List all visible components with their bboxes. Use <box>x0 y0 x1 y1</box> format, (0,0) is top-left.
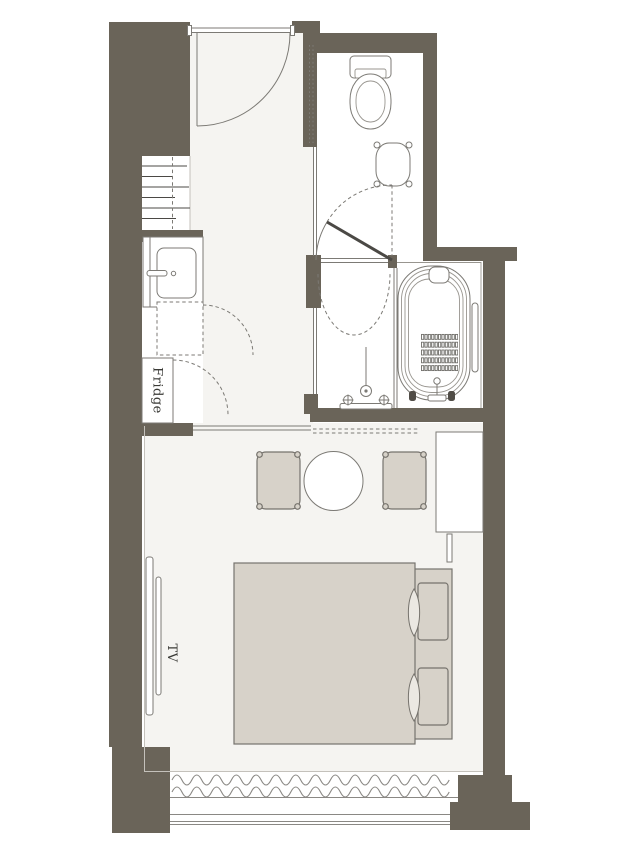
desk-side-panel <box>447 534 452 562</box>
tub-headrest <box>429 267 449 283</box>
wall-foot-right-step <box>458 775 512 802</box>
door-frame-cap-right <box>291 26 295 36</box>
tub-faucet-head <box>434 378 440 384</box>
tub-faucet-base <box>428 395 446 401</box>
wall-top-left <box>109 22 190 156</box>
wall-left <box>109 156 142 747</box>
floor-plan-canvas: Fridge <box>0 0 640 853</box>
toilet-door-arc <box>316 222 327 260</box>
tv-screen <box>146 557 153 715</box>
wall-bath-bottom <box>310 408 483 422</box>
wall-stub-bath <box>423 247 517 261</box>
chair-right <box>383 452 427 510</box>
toilet <box>350 56 391 129</box>
chair-left <box>257 452 301 510</box>
toilet-door-leaf <box>327 222 392 260</box>
corridor-partition <box>314 147 317 256</box>
tv-bracket <box>156 577 161 695</box>
under-counter-area <box>157 302 203 355</box>
tub-mat <box>421 333 458 372</box>
wall-toilet-right <box>423 53 437 250</box>
wall-foot-left <box>112 747 170 833</box>
shower-fixture <box>340 347 392 409</box>
faucet-knob <box>171 271 175 275</box>
bathtub <box>398 266 470 401</box>
pillow-top <box>418 583 448 640</box>
window-zone <box>170 775 458 825</box>
toilet-door <box>316 185 392 263</box>
wall-entry-right <box>292 21 320 33</box>
door-frame-cap-left <box>188 26 192 36</box>
tub-foot-right <box>448 391 455 401</box>
hand-basin <box>374 142 412 187</box>
kitchen-faucet <box>147 271 167 277</box>
pillow-bottom <box>418 668 448 725</box>
coat-hooks <box>142 156 190 230</box>
hand-basin-bowl <box>376 143 410 186</box>
shower-door-swing <box>318 274 390 335</box>
bathroom <box>314 262 482 409</box>
toilet-room <box>310 45 413 263</box>
toilet-door-dashed-arc <box>327 185 392 222</box>
fridge-label: Fridge <box>150 367 165 414</box>
bed-duvet <box>234 563 415 744</box>
desk <box>436 432 483 532</box>
tv-label: TV <box>164 643 179 662</box>
tub-foot-left <box>409 391 416 401</box>
wall-toilet-top <box>303 33 437 53</box>
bed <box>234 563 452 744</box>
corridor-floor <box>190 33 313 426</box>
floor-plan-page: Fridge <box>0 0 640 853</box>
curtain-wave-1 <box>172 775 449 785</box>
wall-stub-corridor <box>140 423 193 436</box>
wall-foot-right-base <box>450 802 530 830</box>
round-table <box>304 452 363 511</box>
wall-right <box>483 261 505 775</box>
towel-bar <box>472 303 478 372</box>
curtain-wave-2 <box>172 787 449 797</box>
